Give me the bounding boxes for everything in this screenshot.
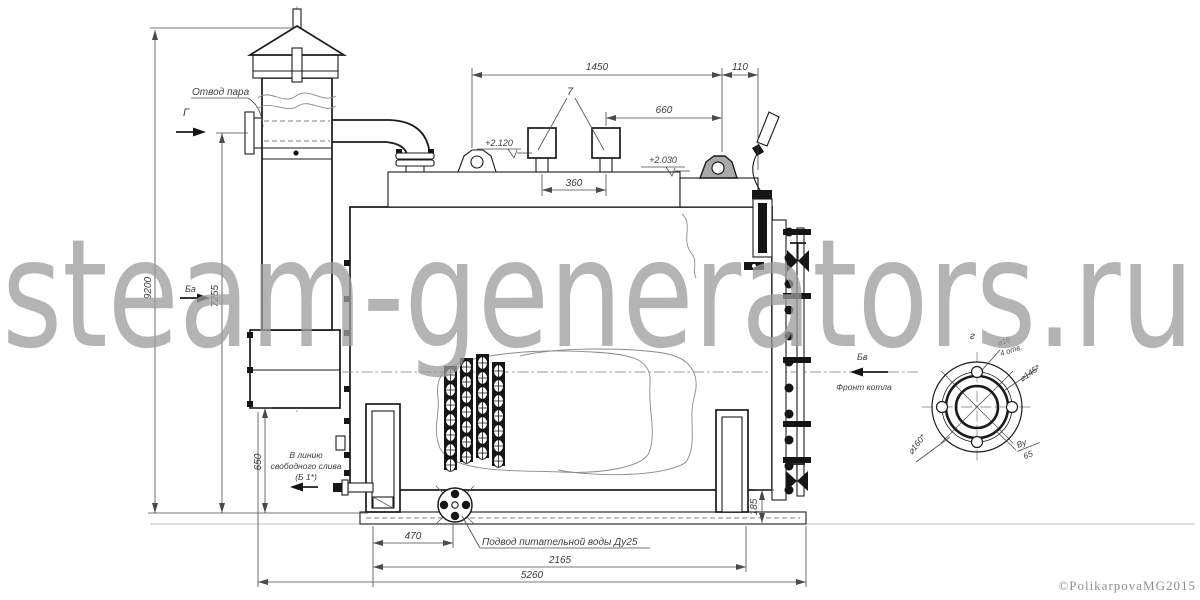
svg-text:+2.030: +2.030 <box>649 155 677 165</box>
dim-660: 660 <box>656 105 673 116</box>
callout-7: 7 <box>567 86 574 98</box>
steam-dome-band-right <box>680 178 758 207</box>
support-leg-right <box>716 410 748 512</box>
chimney-cap <box>250 9 344 82</box>
label-drain-3: (Б 1*) <box>295 472 317 482</box>
label-feed-water: Подвод питательной воды Ду25 <box>482 537 638 548</box>
dim-360: 360 <box>566 178 583 189</box>
label-boiler-front: Фронт котла <box>836 382 892 392</box>
dim-470: 470 <box>405 531 422 542</box>
view-marker-G: Г <box>183 107 190 119</box>
feed-water-flange <box>436 486 474 524</box>
dim-1450: 1450 <box>586 62 609 73</box>
watermark: steam-generators.ru <box>2 208 1194 382</box>
lifting-lug-right <box>700 156 737 178</box>
label-steam-outlet: Отвод пара <box>192 87 250 98</box>
label-drain-1: В линию <box>289 450 323 460</box>
svg-text:65: 65 <box>1022 448 1035 461</box>
steam-dome-band-left <box>388 172 680 207</box>
label-drain-2: свободного слива <box>271 461 342 471</box>
dim-110: 110 <box>732 62 748 73</box>
drawing-page: 1450 110 660 360 9200 7255 650 185 470 2… <box>0 0 1200 600</box>
flange-outer-dia: ⌀160* <box>906 432 928 457</box>
dim-650: 650 <box>253 453 264 470</box>
steam-generator-drawing: 1450 110 660 360 9200 7255 650 185 470 2… <box>0 0 1200 600</box>
safety-valves <box>528 128 620 172</box>
copyright: ©PolikarpovaMG2015 <box>1058 578 1196 593</box>
svg-text:+2.120: +2.120 <box>485 138 513 148</box>
lifting-lug-left <box>458 150 496 172</box>
flange-nominal: Ву 65 <box>1013 432 1044 462</box>
dim-185: 185 <box>749 498 760 515</box>
support-leg-left <box>366 404 400 512</box>
dim-2165: 2165 <box>548 555 572 566</box>
steam-pipe <box>332 120 434 172</box>
wall-bracket <box>336 436 345 450</box>
dim-5260: 5260 <box>521 570 544 581</box>
